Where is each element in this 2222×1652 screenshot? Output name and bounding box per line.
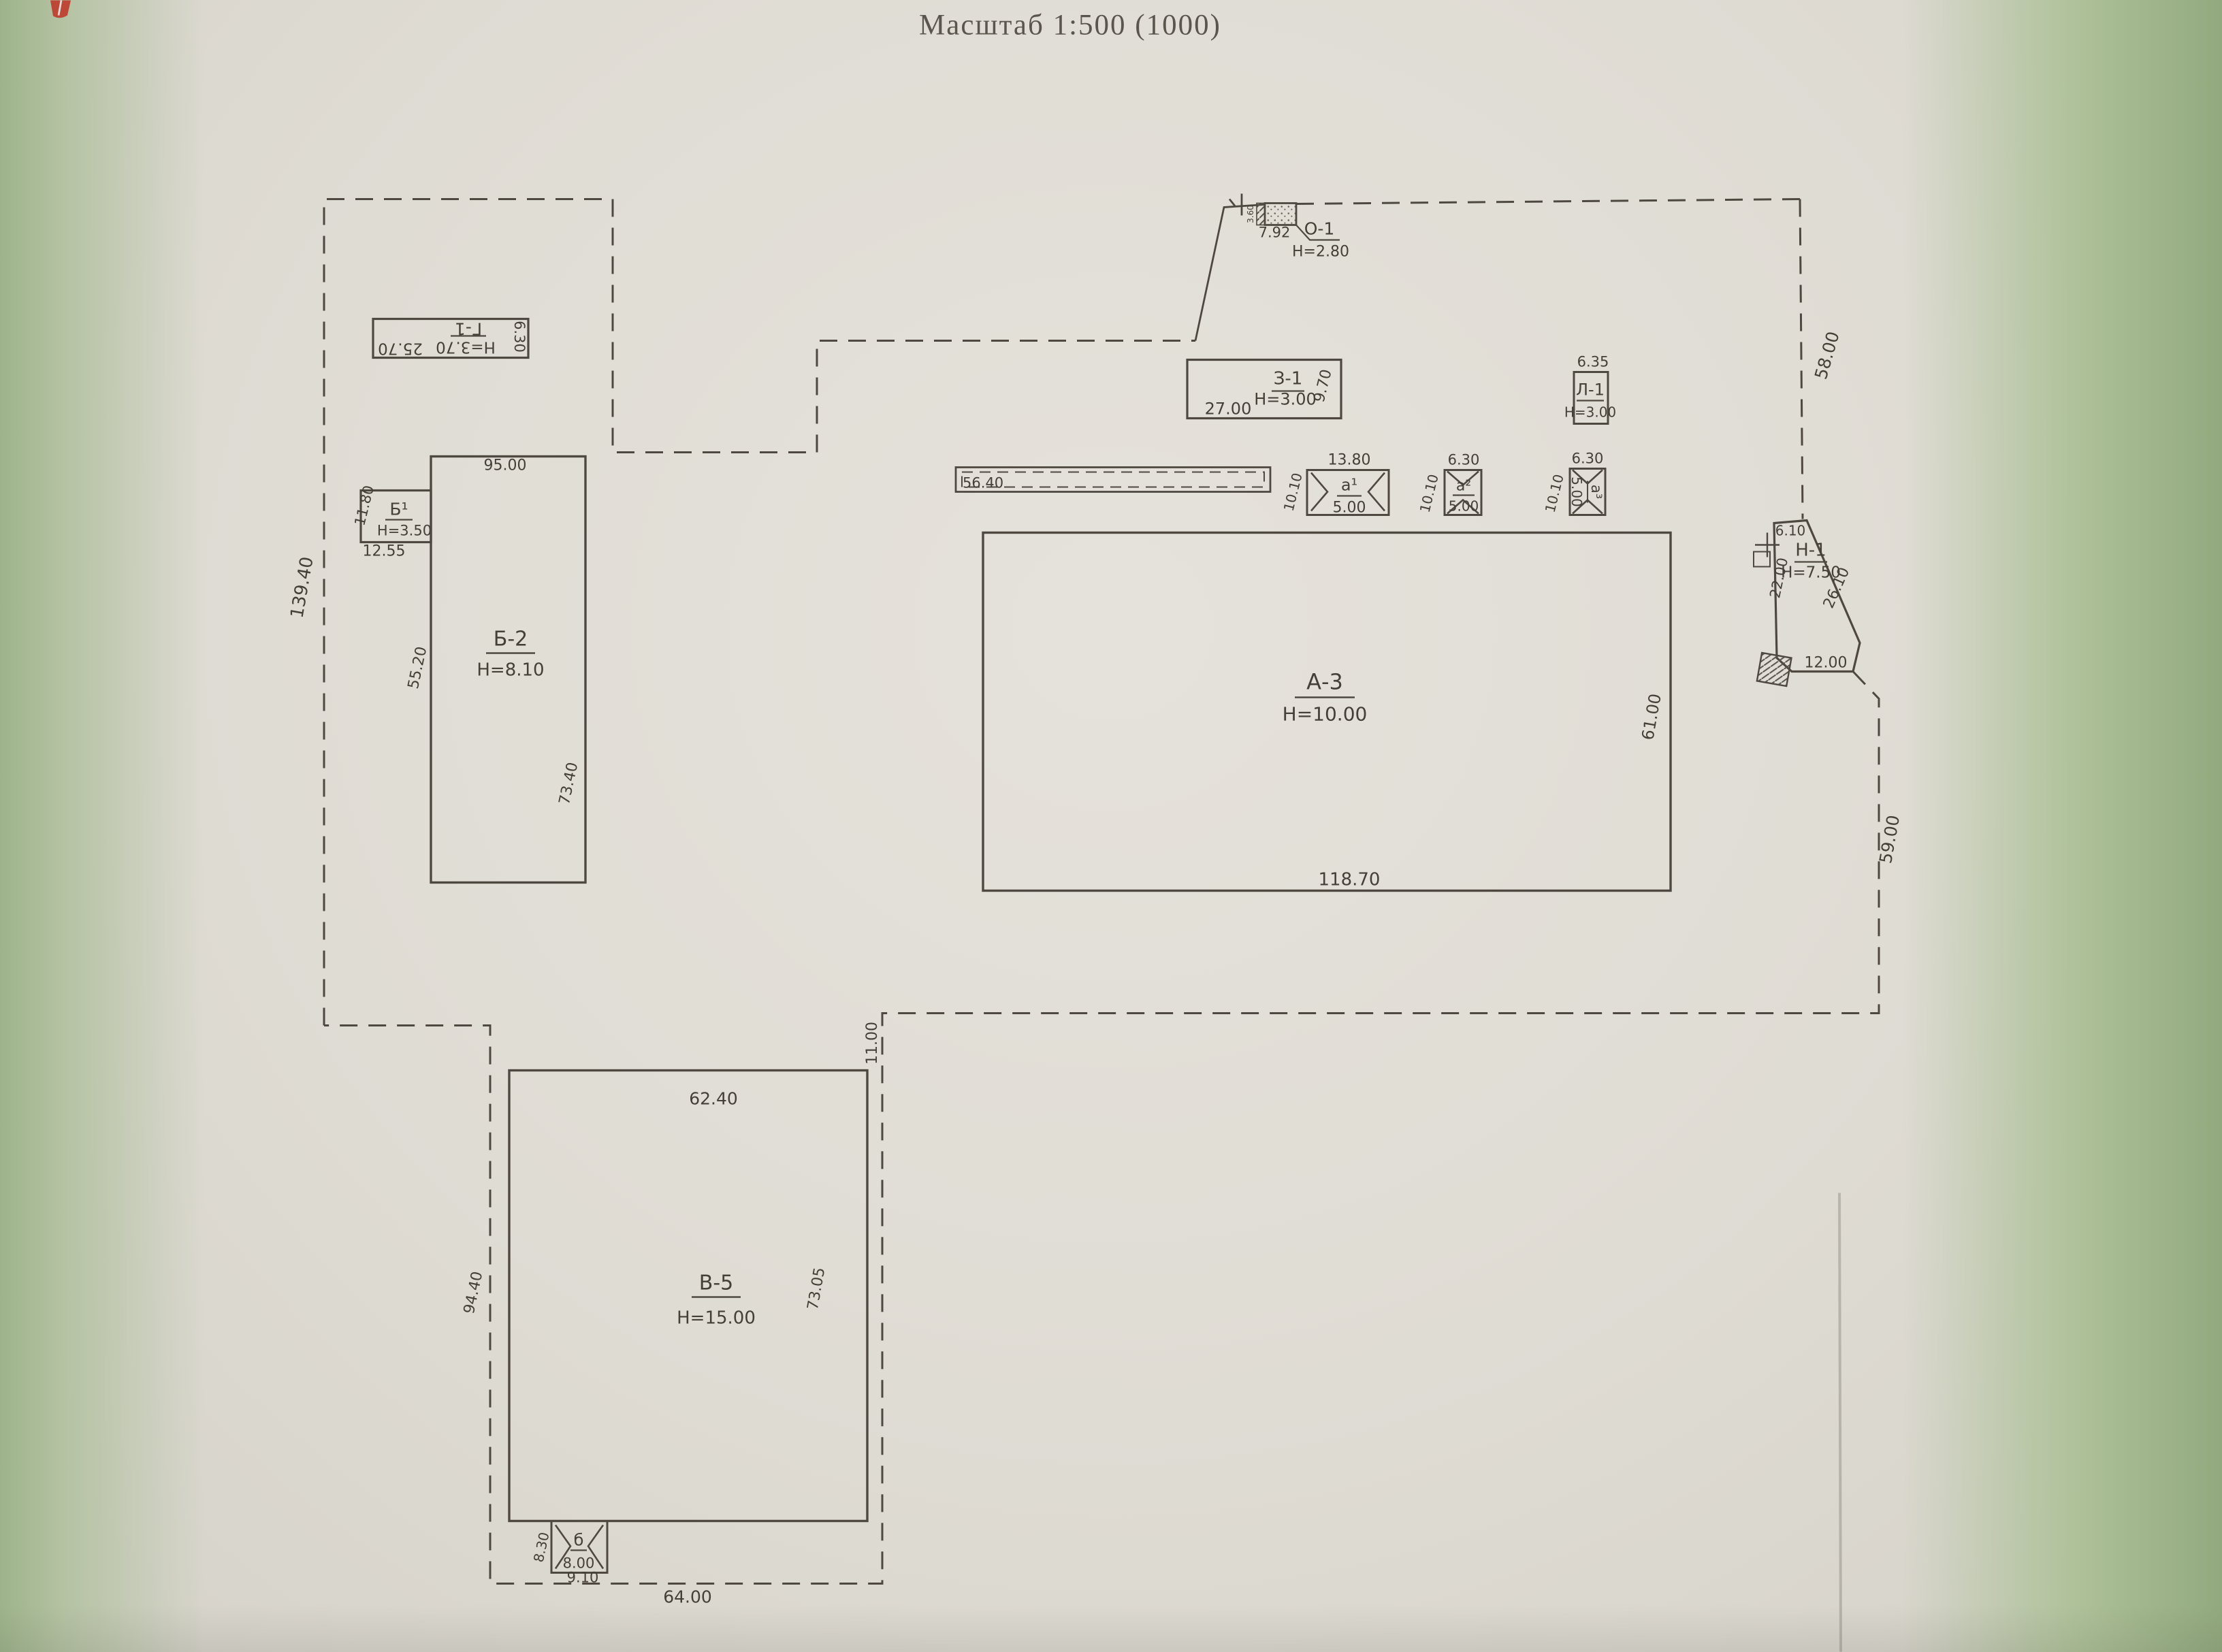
gallery-strip-inner: [962, 472, 1264, 487]
scanned-site-plan: Масштаб 1:500 (1000) 139.40 58.00 59.00 …: [0, 0, 2222, 1652]
structure-n1-bottom: 12.00: [1805, 655, 1848, 672]
building-g1-width: 6.30: [511, 321, 528, 353]
building-l1-top: 6.35: [1577, 354, 1609, 370]
pavilion-a3-value: 5.00: [1568, 476, 1585, 507]
paper-crease: [1839, 1193, 1841, 1652]
pavilion-a2-value: 5.00: [1449, 498, 1479, 515]
building-a3-height: Н=10.00: [1283, 703, 1368, 726]
pavilion-a3-rotated-label: а³ 5.00: [1568, 476, 1605, 507]
structure-n1-label: Н-1: [1795, 540, 1826, 561]
dim-site-bottom: 64.00: [663, 1587, 712, 1607]
structure-n1-hatch-square: [1757, 653, 1792, 686]
pavilion-a2-label: а²: [1456, 478, 1471, 495]
pavilion-a3-top: 6.30: [1572, 451, 1604, 467]
site-plan-drawing: Масштаб 1:500 (1000) 139.40 58.00 59.00 …: [0, 0, 2222, 1652]
structure-n1-hatch-corner: [1757, 653, 1792, 686]
pavilion-a3-side: 10.10: [1542, 472, 1567, 514]
building-v5-top: 62.40: [689, 1089, 738, 1109]
building-b2-left: 55.20: [405, 645, 431, 691]
building-a3-bottom: 118.70: [1319, 870, 1381, 890]
pavilion-a1-label: а¹: [1341, 476, 1357, 495]
structure-o1-side: 3.60: [1246, 205, 1255, 223]
dim-site-topright: 58.00: [1811, 329, 1843, 382]
building-v5-height: Н=15.00: [677, 1308, 756, 1329]
building-v5-right: 73.05: [805, 1266, 829, 1311]
structure-o1-height: Н=2.80: [1292, 244, 1349, 261]
structure-o1: [1265, 204, 1296, 225]
dim-site-left: 139.40: [287, 555, 317, 620]
building-b1-bottom: 12.55: [363, 543, 406, 560]
building-g1-length: 25.70: [378, 340, 423, 357]
building-z1-height: Н=3.00: [1254, 390, 1317, 409]
building-z1-bottom: 27.00: [1205, 400, 1252, 419]
building-b2-top: 95.00: [484, 457, 527, 474]
boundary-north: [1296, 199, 1800, 204]
pavilion-a2-side: 10.10: [1417, 472, 1442, 514]
building-b2-height: Н=8.10: [477, 660, 544, 681]
structure-b-small-label: б: [574, 1531, 584, 1550]
building-a3-right: 61.00: [1638, 692, 1665, 742]
structure-b-small-side: 8.30: [530, 1531, 553, 1564]
structure-n1-height: Н=7.50: [1781, 564, 1841, 582]
pavilion-a1-top: 13.80: [1328, 452, 1371, 469]
boundary-northeast: [1800, 199, 1803, 519]
building-z1-label: З-1: [1274, 369, 1303, 389]
building-z1-right: 9.70: [1311, 368, 1336, 404]
gallery-length: 56.40: [963, 475, 1003, 491]
building-b2-right: 73.40: [556, 761, 582, 807]
building-b1-height: Н=3.50: [377, 523, 432, 539]
pavilion-a3-label: а³: [1588, 485, 1605, 499]
building-b2-label: Б-2: [494, 628, 528, 651]
boundary-tick-small: [1229, 199, 1235, 206]
boundary-south-loop: [324, 672, 1879, 1584]
structure-b-small-bottom: 9.10: [567, 1570, 599, 1586]
building-v5-left: 94.40: [461, 1270, 487, 1316]
structure-o1-hatch: [1257, 204, 1265, 225]
boundary-diagonal: [1195, 205, 1265, 341]
building-l1-label: Л-1: [1576, 380, 1605, 400]
structure-o1-length: 7.92: [1259, 225, 1291, 241]
building-v5-label: В-5: [699, 1272, 734, 1295]
structure-o1-label: О-1: [1304, 219, 1335, 239]
page-title: Масштаб 1:500 (1000): [919, 10, 1221, 42]
structure-n1-top: 6.10: [1775, 523, 1806, 539]
pavilion-a1-value: 5.00: [1333, 500, 1366, 517]
building-b1-label: Б¹: [389, 500, 408, 519]
pavilion-a1-side: 10.10: [1281, 471, 1306, 513]
building-g1-height: Н=3.70: [436, 338, 496, 356]
building-a3-label: А-3: [1306, 669, 1343, 695]
building-b1-side: 11.80: [351, 484, 377, 528]
dim-site-offset: 11.00: [864, 1022, 881, 1065]
pavilion-a2-top: 6.30: [1448, 452, 1480, 468]
building-l1-height: Н=3.00: [1564, 404, 1616, 421]
